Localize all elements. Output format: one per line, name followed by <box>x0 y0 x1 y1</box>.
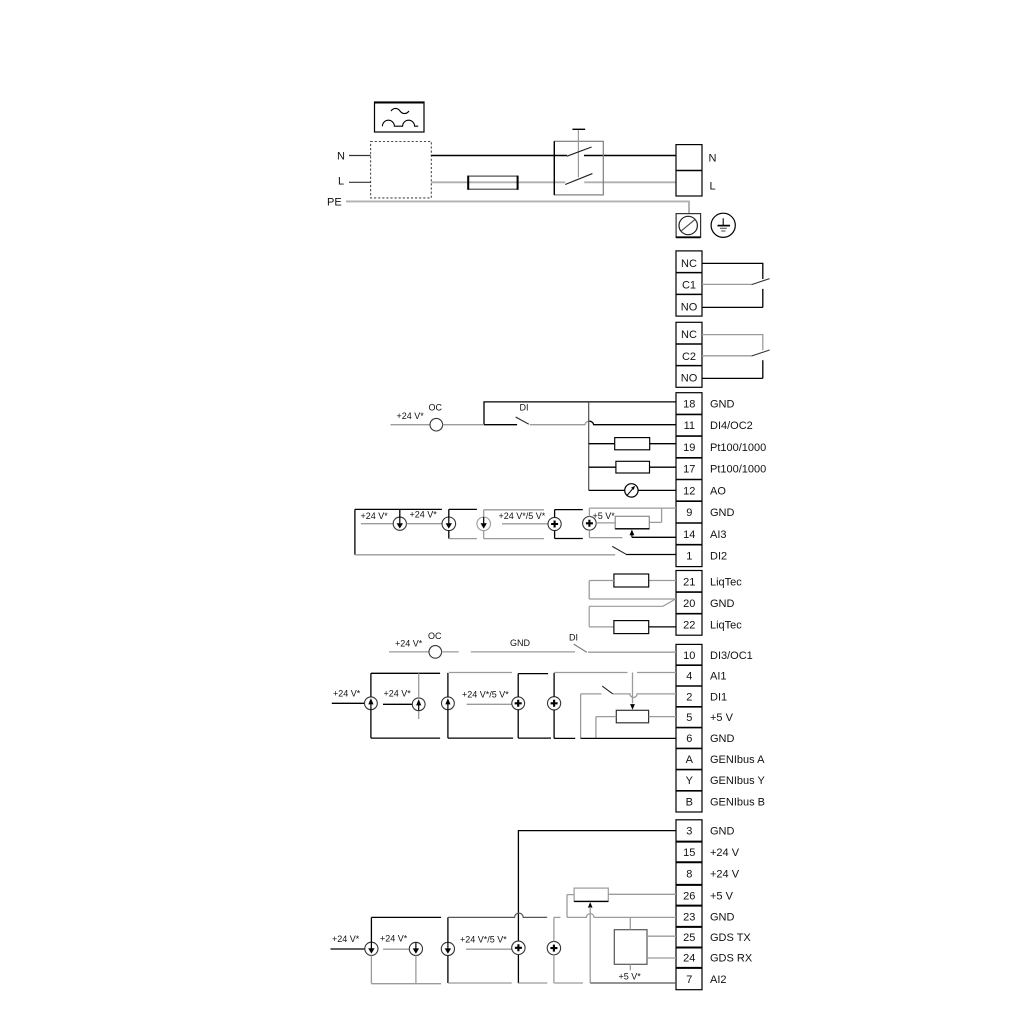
svg-text:18: 18 <box>683 399 695 411</box>
svg-text:+5 V: +5 V <box>710 890 734 902</box>
svg-text:+24 V: +24 V <box>710 847 740 859</box>
svg-text:17: 17 <box>683 464 695 476</box>
svg-text:GDS RX: GDS RX <box>710 953 753 965</box>
svg-text:21: 21 <box>683 576 695 588</box>
svg-text:12: 12 <box>683 485 695 497</box>
svg-text:26: 26 <box>683 890 695 902</box>
svg-text:Pt100/1000: Pt100/1000 <box>710 442 766 454</box>
svg-text:GDS TX: GDS TX <box>710 932 751 944</box>
svg-text:6: 6 <box>686 733 692 745</box>
svg-text:A: A <box>686 754 694 766</box>
svg-text:NC: NC <box>681 258 697 270</box>
svg-text:NO: NO <box>681 373 698 385</box>
svg-text:GND: GND <box>510 638 531 648</box>
svg-text:+5 V*: +5 V* <box>593 511 616 521</box>
svg-text:22: 22 <box>683 620 695 632</box>
svg-text:LiqTec: LiqTec <box>710 576 742 588</box>
svg-text:GND: GND <box>710 733 735 745</box>
svg-text:14: 14 <box>683 529 695 541</box>
svg-text:7: 7 <box>686 974 692 986</box>
svg-text:OC: OC <box>428 631 442 641</box>
svg-text:GENIbus A: GENIbus A <box>710 754 765 766</box>
svg-text:+24 V*/5 V*: +24 V*/5 V* <box>460 934 507 944</box>
svg-text:DI2: DI2 <box>710 551 727 563</box>
svg-text:10: 10 <box>683 650 695 662</box>
svg-text:8: 8 <box>686 869 692 881</box>
svg-text:DI: DI <box>520 403 529 413</box>
svg-text:+24 V*: +24 V* <box>332 934 360 944</box>
svg-text:+5 V*: +5 V* <box>619 972 642 982</box>
svg-text:AI3: AI3 <box>710 529 727 541</box>
svg-text:GND: GND <box>710 911 735 923</box>
svg-text:+24 V*: +24 V* <box>333 689 361 699</box>
svg-text:GENIbus Y: GENIbus Y <box>710 775 765 787</box>
svg-text:+24 V*: +24 V* <box>395 639 423 649</box>
svg-text:AO: AO <box>710 485 726 497</box>
svg-text:Y: Y <box>686 775 694 787</box>
svg-text:DI4/OC2: DI4/OC2 <box>710 420 753 432</box>
svg-text:N: N <box>709 153 717 165</box>
svg-text:GND: GND <box>710 826 735 838</box>
svg-text:+24 V*: +24 V* <box>380 934 408 944</box>
svg-text:N: N <box>337 151 345 163</box>
svg-text:20: 20 <box>683 598 695 610</box>
svg-text:+24 V*/5 V*: +24 V*/5 V* <box>462 690 509 700</box>
svg-text:AI2: AI2 <box>710 974 727 986</box>
svg-text:GND: GND <box>710 598 735 610</box>
svg-text:+24 V*: +24 V* <box>397 411 425 421</box>
svg-text:NO: NO <box>681 301 698 313</box>
svg-text:NC: NC <box>681 329 697 341</box>
svg-text:LiqTec: LiqTec <box>710 620 742 632</box>
svg-text:+5 V: +5 V <box>710 712 734 724</box>
svg-text:5: 5 <box>686 712 692 724</box>
svg-text:15: 15 <box>683 847 695 859</box>
svg-text:+24 V*: +24 V* <box>361 511 389 521</box>
svg-text:25: 25 <box>683 932 695 944</box>
svg-text:4: 4 <box>686 671 692 683</box>
svg-text:L: L <box>338 176 344 188</box>
svg-text:PE: PE <box>327 197 342 209</box>
svg-text:DI: DI <box>569 632 578 642</box>
svg-text:+24 V*: +24 V* <box>410 510 438 520</box>
svg-text:OC: OC <box>429 403 443 413</box>
svg-text:AI1: AI1 <box>710 671 727 683</box>
svg-text:9: 9 <box>686 507 692 519</box>
svg-text:1: 1 <box>686 551 692 563</box>
svg-text:DI3/OC1: DI3/OC1 <box>710 650 753 662</box>
svg-text:L: L <box>710 180 716 192</box>
svg-text:B: B <box>686 796 693 808</box>
svg-text:23: 23 <box>683 911 695 923</box>
svg-text:GND: GND <box>710 399 735 411</box>
svg-text:2: 2 <box>686 691 692 703</box>
svg-text:Pt100/1000: Pt100/1000 <box>710 464 766 476</box>
svg-text:DI1: DI1 <box>710 691 727 703</box>
svg-text:3: 3 <box>686 826 692 838</box>
svg-text:24: 24 <box>683 953 695 965</box>
svg-text:+24 V*: +24 V* <box>384 689 412 699</box>
svg-text:GENIbus B: GENIbus B <box>710 796 765 808</box>
svg-text:+24 V*/5 V*: +24 V*/5 V* <box>499 511 546 521</box>
svg-text:GND: GND <box>710 507 735 519</box>
svg-text:C1: C1 <box>682 280 696 292</box>
svg-text:19: 19 <box>683 442 695 454</box>
svg-text:C2: C2 <box>682 351 696 363</box>
svg-text:+24 V: +24 V <box>710 869 740 881</box>
svg-text:11: 11 <box>684 420 695 432</box>
